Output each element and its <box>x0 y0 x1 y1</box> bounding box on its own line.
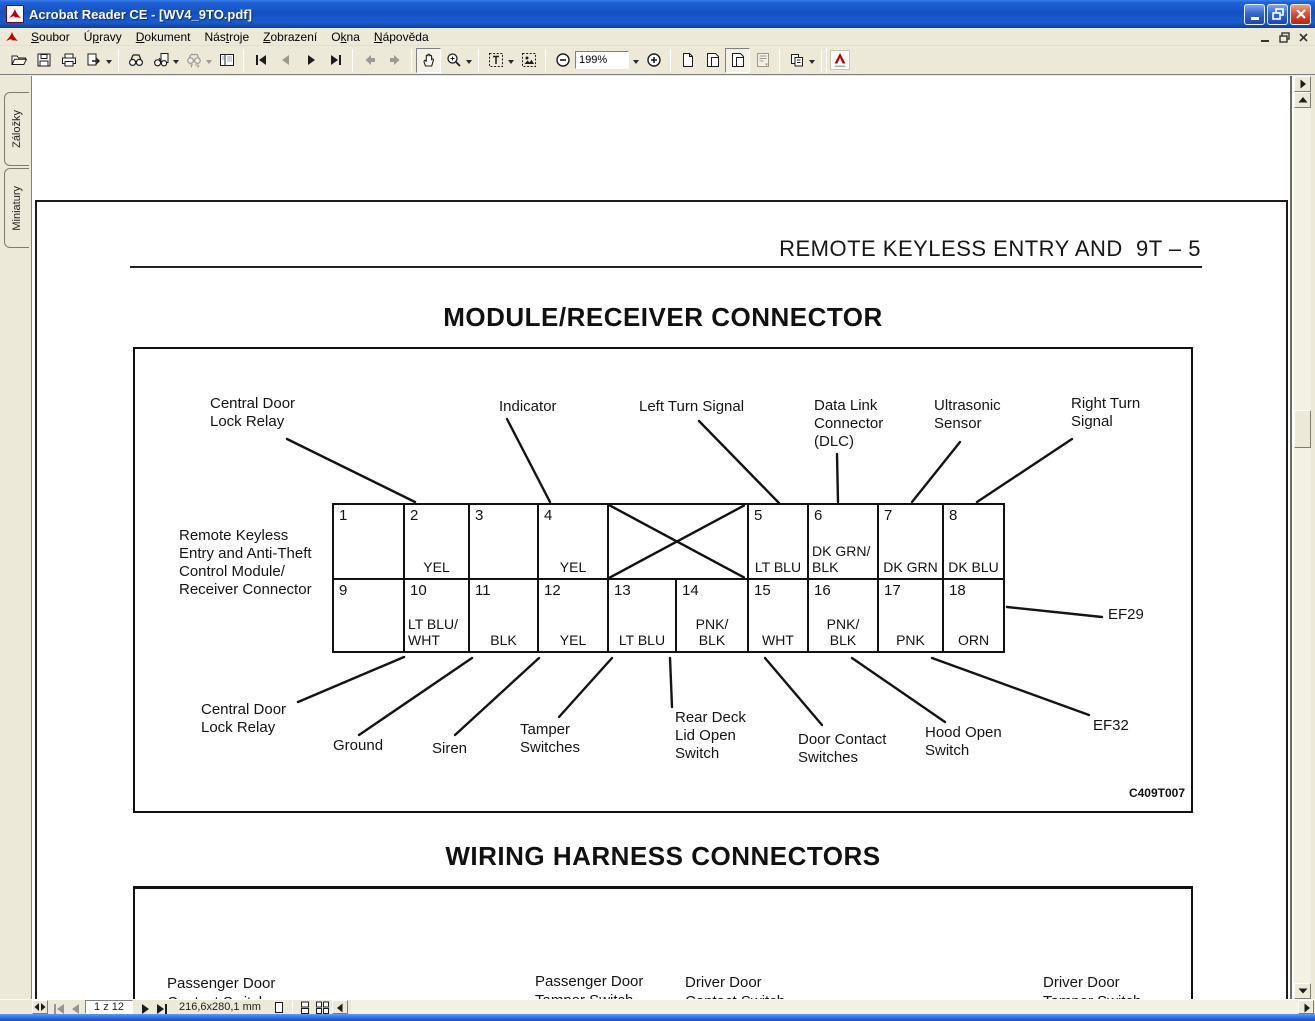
pin-cell-5: 5LT BLU <box>747 505 807 578</box>
continuous-pages-icon <box>298 1001 312 1014</box>
search-button[interactable] <box>148 48 173 73</box>
pane-splitter-button[interactable] <box>1294 76 1311 92</box>
magnifier-icon <box>446 52 462 68</box>
window-title: Acrobat Reader CE - [WV4_9TO.pdf] <box>29 7 1242 22</box>
print-button[interactable] <box>56 48 81 73</box>
page-number-indicator[interactable]: 1 z 12 <box>85 1000 133 1014</box>
page-left-edge <box>35 200 37 999</box>
menu-soubor[interactable]: Soubor <box>24 29 77 45</box>
left-arrow-icon <box>333 1001 346 1014</box>
search-dropdown[interactable] <box>173 60 179 67</box>
pin-cell-8: 8DK BLU <box>942 505 1003 578</box>
section2-title: WIRING HARNESS CONNECTORS <box>133 841 1193 872</box>
previous-page-icon <box>278 52 294 68</box>
label-driver-door-contact-switch: Driver Door Contact Switch <box>685 973 785 999</box>
search-results-dropdown <box>206 60 212 67</box>
close-button[interactable] <box>1290 4 1311 25</box>
mdi-minimize-button[interactable] <box>1256 30 1273 44</box>
find-binoculars-icon <box>128 52 144 68</box>
page-right-edge <box>1286 200 1288 999</box>
pin-cell-17: 17PNK <box>877 580 942 651</box>
save-button[interactable] <box>31 48 56 73</box>
tab-miniatury[interactable]: Miniatury <box>4 168 29 248</box>
menu-napoveda[interactable]: Nápověda <box>367 29 436 45</box>
save-icon <box>36 52 52 68</box>
pin-cell-4: 4YEL <box>537 505 607 578</box>
facing-pages-icon <box>315 1001 330 1014</box>
pin-cell-3: 3 <box>468 505 537 578</box>
menu-bar: Soubor Úpravy Dokument Nástroje Zobrazen… <box>0 28 1315 46</box>
first-page-button[interactable] <box>248 48 273 73</box>
layout-single-page-button[interactable] <box>271 1000 287 1014</box>
mdi-window-controls <box>1256 30 1315 44</box>
last-page-icon <box>154 1001 167 1014</box>
label-module-receiver-connector: Remote Keyless Entry and Anti-Theft Cont… <box>179 527 312 599</box>
label-passenger-door-tamper-switch: Passenger Door Tamper Switch <box>535 972 643 999</box>
first-page-icon <box>51 1001 64 1014</box>
label-central-door-lock-relay-bottom: Central Door Lock Relay <box>201 701 286 737</box>
pin-cell-18: 18ORN <box>942 580 1003 651</box>
statusbar-separator <box>292 1001 293 1013</box>
fit-in-window-icon <box>705 52 721 68</box>
acrobat-reader-window: Acrobat Reader CE - [WV4_9TO.pdf] Soubor… <box>0 0 1315 1021</box>
label-data-link-connector: Data Link Connector (DLC) <box>814 397 883 451</box>
pin-cell-13: 13LT BLU <box>607 580 675 651</box>
hand-tool-icon <box>421 52 437 68</box>
toolbar-separator <box>670 49 671 72</box>
hscroll-right-button[interactable] <box>1298 1000 1314 1014</box>
send-mail-dropdown[interactable] <box>106 60 112 67</box>
hscroll-left-button[interactable] <box>332 1000 348 1014</box>
pin-cell-9: 9 <box>334 580 403 651</box>
send-mail-icon <box>86 52 102 68</box>
status-next-page-button[interactable] <box>135 1000 151 1014</box>
nav-pane-icon <box>219 52 235 68</box>
zoom-tool-dropdown[interactable] <box>466 60 472 67</box>
pin-row-top: 1 2YEL 3 4YEL 5LT BLU 6DK GRN/ BLK 7DK G… <box>334 505 1003 580</box>
connector-figure-box: Central Door Lock Relay Indicator Left T… <box>133 347 1193 813</box>
label-indicator: Indicator <box>499 398 557 416</box>
zoom-in-icon <box>646 52 662 68</box>
page-top-edge <box>35 200 1288 202</box>
toolbar-separator <box>478 49 479 72</box>
blocked-cell-x <box>607 505 747 578</box>
search-results-icon <box>186 52 202 68</box>
search-results-button <box>181 48 206 73</box>
pin-cell-12: 12YEL <box>537 580 607 651</box>
pin-cell-1: 1 <box>334 505 403 578</box>
scroll-up-button[interactable] <box>1294 92 1311 108</box>
up-arrow-icon <box>1296 93 1310 107</box>
title-bar[interactable]: Acrobat Reader CE - [WV4_9TO.pdf] <box>0 0 1315 28</box>
reflow-button <box>750 48 775 73</box>
toolbar <box>0 46 1315 75</box>
next-page-icon <box>303 52 319 68</box>
actual-size-button[interactable] <box>675 48 700 73</box>
status-last-page-button[interactable] <box>152 1000 168 1014</box>
status-prev-page-button <box>66 1000 82 1014</box>
down-arrow-icon <box>1296 984 1310 998</box>
label-right-turn-signal: Right Turn Signal <box>1071 395 1140 431</box>
layout-facing-button[interactable] <box>314 1000 331 1014</box>
find-button[interactable] <box>123 48 148 73</box>
label-central-door-lock-relay-top: Central Door Lock Relay <box>210 395 295 431</box>
pin-cell-15: 15WHT <box>747 580 807 651</box>
label-driver-door-tamper-switch: Driver Door Tamper Switch <box>1043 973 1141 999</box>
window-right-border <box>1311 76 1315 999</box>
adobe-logo <box>826 48 852 73</box>
reflow-icon <box>755 52 771 68</box>
toolbar-separator <box>545 49 546 72</box>
pin-cell-2: 2YEL <box>403 505 468 578</box>
zoom-level-input[interactable] <box>575 51 629 69</box>
right-arrow-icon <box>1300 1001 1313 1014</box>
splitter-arrow-icon <box>1296 77 1310 91</box>
pin-cell-10: 10LT BLU/ WHT <box>403 580 468 651</box>
connector-pin-table: 1 2YEL 3 4YEL 5LT BLU 6DK GRN/ BLK 7DK G… <box>332 503 1005 653</box>
zoom-in-button[interactable] <box>641 48 666 73</box>
label-siren: Siren <box>432 740 467 758</box>
label-ef29: EF29 <box>1108 606 1144 624</box>
first-page-icon <box>253 52 269 68</box>
scroll-down-button[interactable] <box>1294 983 1311 999</box>
page-mode-dropdown[interactable] <box>809 60 815 67</box>
label-ultrasonic-sensor: Ultrasonic Sensor <box>934 397 1001 433</box>
acrobat-app-icon <box>6 5 24 23</box>
statusbar-splitter-button[interactable] <box>32 1000 48 1014</box>
pin-cell-16: 16PNK/ BLK <box>807 580 877 651</box>
label-ef32: EF32 <box>1093 717 1129 735</box>
pin-cell-11: 11BLK <box>468 580 537 651</box>
header-rule <box>130 266 1202 268</box>
menu-zobrazeni[interactable]: Zobrazení <box>256 29 324 45</box>
status-bar: 1 z 12 216,6x280,1 mm <box>0 999 1315 1014</box>
pin-row-bottom: 9 10LT BLU/ WHT 11BLK 12YEL 13LT BLU 14P… <box>334 580 1003 651</box>
graphics-select-button[interactable] <box>516 48 541 73</box>
minimize-button[interactable] <box>1244 4 1265 25</box>
go-forward-button <box>382 48 407 73</box>
fit-width-icon <box>730 52 746 68</box>
next-page-button[interactable] <box>298 48 323 73</box>
label-ground: Ground <box>333 737 383 755</box>
actual-size-icon <box>680 52 696 68</box>
forward-arrow-icon <box>387 52 403 68</box>
toolbar-separator <box>243 49 244 72</box>
zoom-out-button[interactable] <box>550 48 575 73</box>
splitter-icon <box>33 1000 47 1014</box>
menu-okna[interactable]: Okna <box>324 29 367 45</box>
next-page-icon <box>137 1001 150 1014</box>
graphics-select-icon <box>521 52 537 68</box>
label-door-contact-switches: Door Contact Switches <box>798 731 886 767</box>
search-document-icon <box>153 52 169 68</box>
page-mode-button[interactable] <box>784 48 809 73</box>
previous-page-button <box>273 48 298 73</box>
label-passenger-door-contact-switch: Passenger Door Contact Switch <box>167 974 275 999</box>
section1-title: MODULE/RECEIVER CONNECTOR <box>133 302 1193 333</box>
toolbar-separator <box>118 49 119 72</box>
menu-dokument[interactable]: Dokument <box>129 29 198 45</box>
menu-nastroje[interactable]: Nástroje <box>197 29 256 45</box>
taskbar-edge <box>0 1014 1315 1021</box>
page-mode-icon <box>789 52 805 68</box>
last-page-button[interactable] <box>323 48 348 73</box>
vertical-scroll-thumb[interactable] <box>1294 410 1311 448</box>
status-first-page-button <box>49 1000 65 1014</box>
send-mail-button[interactable] <box>81 48 106 73</box>
toolbar-separator <box>779 49 780 72</box>
mdi-close-button[interactable] <box>1294 30 1311 44</box>
label-rear-deck-lid-open-switch: Rear Deck Lid Open Switch <box>675 709 746 763</box>
pdf-document-icon[interactable] <box>2 29 20 45</box>
menu-upravy[interactable]: Úpravy <box>77 29 129 45</box>
toolbar-separator <box>411 49 412 72</box>
open-folder-icon <box>11 52 27 68</box>
toolbar-separator <box>352 49 353 72</box>
previous-page-icon <box>68 1001 81 1014</box>
pin-cell-6: 6DK GRN/ BLK <box>807 505 877 578</box>
open-button[interactable] <box>6 48 31 73</box>
page-canvas[interactable]: REMOTE KEYLESS ENTRY AND 9T – 5 MODULE/R… <box>32 76 1292 999</box>
mdi-restore-button[interactable] <box>1275 30 1292 44</box>
page-header: REMOTE KEYLESS ENTRY AND 9T – 5 <box>779 236 1201 262</box>
navigation-tab-strip: Záložky Miniatury <box>0 76 32 999</box>
label-left-turn-signal: Left Turn Signal <box>639 398 744 416</box>
restore-button[interactable] <box>1267 4 1288 25</box>
zoom-tool-button[interactable] <box>441 48 466 73</box>
harness-figure-box: Passenger Door Contact Switch Passenger … <box>133 886 1193 999</box>
hand-tool-button[interactable] <box>416 48 441 73</box>
zoom-level-dropdown[interactable] <box>633 60 639 67</box>
zoom-out-icon <box>555 52 571 68</box>
toolbar-separator <box>821 49 822 72</box>
last-page-icon <box>328 52 344 68</box>
pin-cell-14: 14PNK/ BLK <box>675 580 747 651</box>
tab-zalozky[interactable]: Záložky <box>4 92 29 166</box>
document-pane: Záložky Miniatury REMOTE KEYLESS ENTRY A… <box>0 76 1315 999</box>
nav-pane-button[interactable] <box>214 48 239 73</box>
text-select-icon <box>488 52 504 68</box>
figure-code: C409T007 <box>1075 786 1185 800</box>
pin-cell-7: 7DK GRN <box>877 505 942 578</box>
fit-in-window-button[interactable] <box>700 48 725 73</box>
vertical-scrollbar[interactable] <box>1294 76 1311 999</box>
text-select-dropdown[interactable] <box>508 60 514 67</box>
fit-width-button[interactable] <box>725 48 750 73</box>
label-hood-open-switch: Hood Open Switch <box>925 724 1002 760</box>
back-arrow-icon <box>362 52 378 68</box>
go-back-button <box>357 48 382 73</box>
horizontal-scrollbar-track[interactable] <box>351 1000 1298 1015</box>
page-dimensions: 216,6x280,1 mm <box>179 1001 261 1013</box>
print-icon <box>61 52 77 68</box>
text-select-button[interactable] <box>483 48 508 73</box>
layout-continuous-button[interactable] <box>297 1000 313 1014</box>
label-tamper-switches: Tamper Switches <box>520 721 580 757</box>
single-page-icon <box>272 1001 286 1014</box>
